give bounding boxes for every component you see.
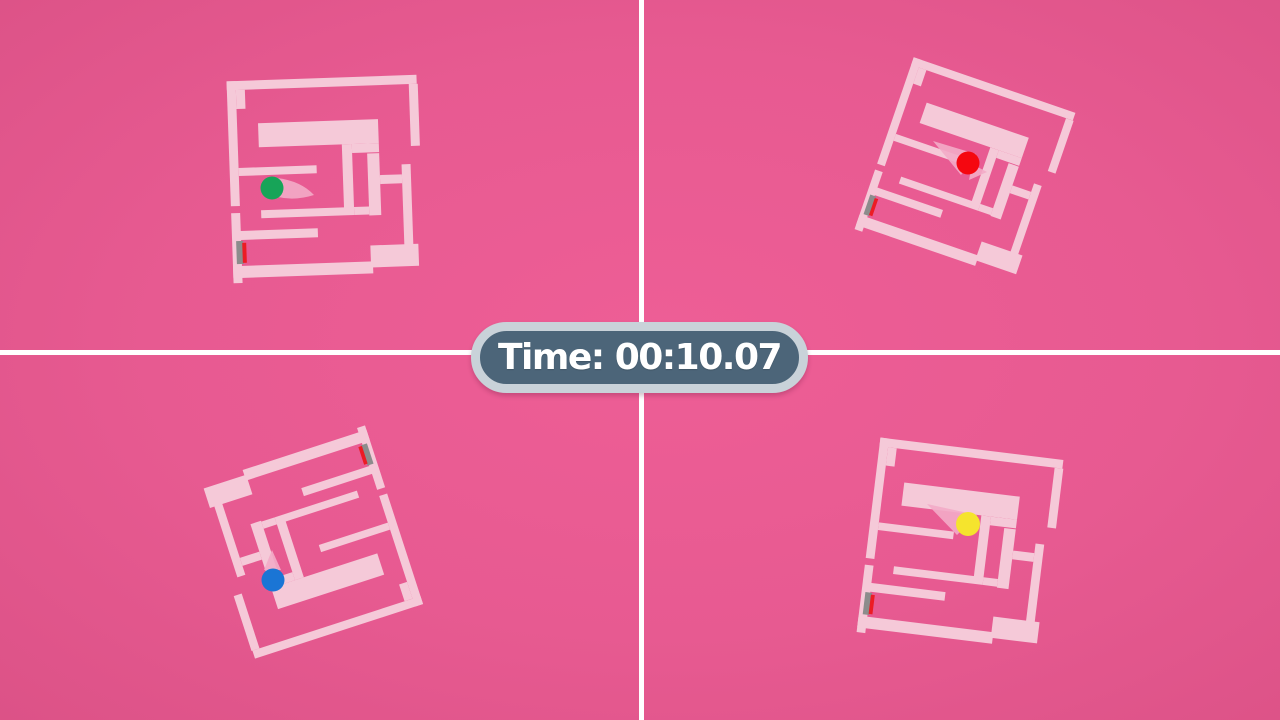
maze-wall xyxy=(877,57,921,166)
player-ball-bottom-right[interactable] xyxy=(956,512,980,536)
maze-wall xyxy=(240,552,262,566)
maze-wall xyxy=(239,165,317,176)
maze-wall xyxy=(233,261,373,278)
maze-wall xyxy=(402,164,414,257)
maze-wall xyxy=(261,517,277,528)
maze-wall xyxy=(258,119,379,147)
maze-wall xyxy=(1012,551,1034,562)
maze-wall xyxy=(878,522,954,539)
maze-wall xyxy=(234,594,260,651)
game-screen: Time: 00:10.07 xyxy=(0,0,1280,720)
maze-bottom-right[interactable] xyxy=(857,438,1065,655)
timer-badge: Time: 00:10.07 xyxy=(471,322,808,393)
maze-wall xyxy=(1010,185,1031,199)
maze-wall xyxy=(380,174,402,184)
maze-wall xyxy=(893,566,983,585)
maze-wall xyxy=(227,75,417,91)
maze-wall xyxy=(1048,118,1074,173)
maze-wall xyxy=(864,582,946,601)
maze-wall xyxy=(319,523,390,552)
maze-wall xyxy=(857,616,993,644)
maze-wall xyxy=(342,144,354,210)
maze-wall xyxy=(1047,468,1063,529)
goal-marker-red xyxy=(242,243,247,263)
maze-wall xyxy=(204,475,253,508)
player-ball-bottom-left[interactable] xyxy=(262,569,285,592)
maze-wall xyxy=(276,519,304,580)
maze-wall xyxy=(856,215,979,266)
timer-label: Time: 00:10.07 xyxy=(498,337,781,378)
maze-wall xyxy=(261,207,354,218)
goal-marker-top-left xyxy=(236,241,247,264)
player-ball-top-right[interactable] xyxy=(957,152,980,175)
maze-wall xyxy=(236,90,246,109)
maze-wall xyxy=(370,244,419,268)
maze-top-left[interactable] xyxy=(227,75,425,284)
maze-wall xyxy=(409,84,420,146)
maze-wall xyxy=(879,438,1063,469)
maze-wall xyxy=(354,206,369,215)
player-ball-top-left[interactable] xyxy=(261,177,284,200)
maze-wall xyxy=(275,491,360,525)
maze-wall xyxy=(866,438,889,559)
maze-wall xyxy=(978,204,993,215)
maze-bottom-left[interactable] xyxy=(196,425,423,659)
maze-wall xyxy=(983,577,998,586)
maze-wall xyxy=(301,464,378,496)
maze-wall xyxy=(234,228,318,240)
maze-wall xyxy=(352,143,379,153)
maze-wall xyxy=(367,153,381,215)
